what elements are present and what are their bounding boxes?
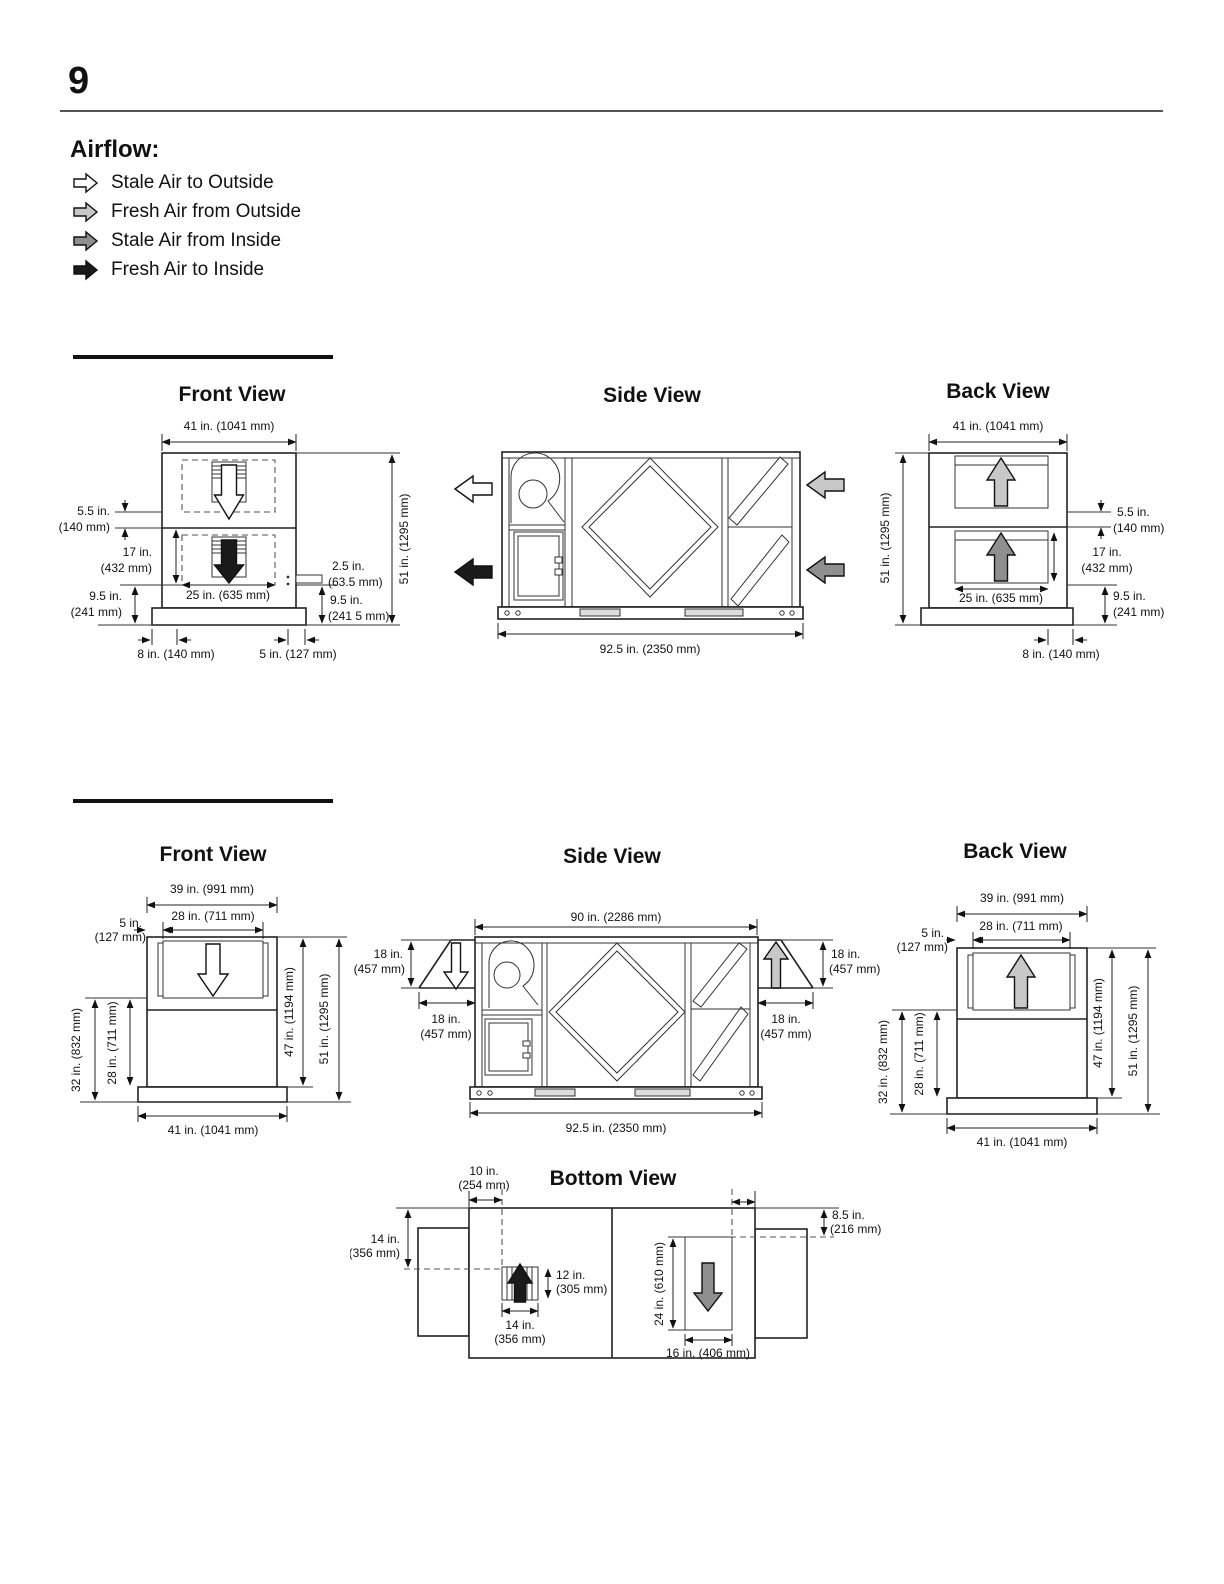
base-rail	[498, 607, 803, 619]
legend-item-fresh-to-in: Fresh Air to Inside	[72, 259, 301, 281]
right-arrow-icon	[72, 201, 99, 223]
dimension-lines	[498, 623, 803, 639]
fresh-to-in-arrow-glyph	[74, 261, 97, 279]
dim-base-off-in: 9.5 in.	[1113, 589, 1146, 603]
dim-drain-mm: (63.5 mm)	[328, 575, 383, 589]
fresh-air-from-outside-arrow	[807, 472, 844, 498]
dim-width-base: 41 in. (1041 mm)	[977, 1135, 1068, 1149]
diagram-title: Front View	[179, 383, 287, 406]
dim-right-off-in: 9.5 in.	[330, 593, 363, 607]
dim-foot: 8 in. (140 mm)	[1022, 647, 1099, 661]
page-number: 9	[68, 60, 89, 103]
dim-base-off-mm: (241 mm)	[1113, 605, 1164, 619]
dim-width-top: 39 in. (991 mm)	[170, 882, 254, 896]
dim-gap-in: 5.5 in.	[77, 504, 110, 518]
airflow-legend: Stale Air to Outside Fresh Air from Outs…	[72, 172, 301, 281]
fresh-air-in-arrow	[455, 559, 492, 585]
dim-height-ground: 32 in. (832 mm)	[876, 1020, 890, 1104]
dim-offset-in: 5 in.	[119, 916, 142, 930]
right-arrow-icon	[72, 172, 99, 194]
dim-gap-mm: (140 mm)	[59, 520, 110, 534]
dim-height: 51 in. (1295 mm)	[397, 494, 411, 585]
dim-width-top: 39 in. (991 mm)	[980, 891, 1064, 905]
dim-width-top: 41 in. (1041 mm)	[184, 419, 275, 433]
legend-label: Stale Air from Inside	[111, 230, 281, 252]
dim-height-ground: 32 in. (832 mm)	[69, 1008, 83, 1092]
fresh-air-from-outside-arrow	[764, 942, 788, 988]
dim-side-in: 14 in.	[371, 1232, 400, 1246]
unit1-front-view-diagram: Front View	[40, 368, 440, 670]
legend-label: Stale Air to Outside	[111, 172, 274, 194]
dim-base-off-mm: (241 mm)	[71, 605, 122, 619]
unit2-back-view-diagram: Back View 39 in. (991 mm) 2	[860, 825, 1224, 1155]
section-divider-2	[73, 799, 333, 803]
right-arrow-icon	[72, 230, 99, 252]
stale-out-arrow-glyph	[74, 174, 97, 192]
left-hood-footprint	[418, 1228, 469, 1336]
bottom-view-diagram: Bottom View	[350, 1145, 890, 1390]
legend-label: Fresh Air from Outside	[111, 201, 301, 223]
dim-foot-left: 8 in. (140 mm)	[137, 647, 214, 661]
dim-drain-in: 2.5 in.	[332, 559, 365, 573]
dim-height-cabinet: 47 in. (1194 mm)	[282, 967, 296, 1057]
dim-height-base: 28 in. (711 mm)	[105, 1001, 119, 1084]
diagram-title: Bottom View	[550, 1167, 677, 1190]
dim-length: 92.5 in. (2350 mm)	[600, 642, 701, 656]
dim-grille-h-mm: (305 mm)	[556, 1282, 607, 1296]
unit2-side-view-diagram: Side View	[345, 825, 890, 1150]
cabinet-outline	[404, 1189, 834, 1358]
dim-opening-h: 24 in. (610 mm)	[652, 1242, 666, 1326]
dim-height-cabinet: 47 in. (1194 mm)	[1091, 978, 1105, 1068]
dim-edge-in: 8.5 in.	[832, 1208, 865, 1222]
dim-gap-mm: (140 mm)	[1113, 521, 1164, 535]
diagram-title: Back View	[963, 840, 1067, 863]
dim-hood-left-w-mm: (457 mm)	[420, 1027, 471, 1041]
stale-from-in-arrow-glyph	[74, 232, 97, 250]
diagram-title: Back View	[946, 380, 1050, 403]
stale-air-out-arrow	[455, 476, 492, 502]
dim-offset-in: 10 in.	[469, 1164, 498, 1178]
dim-opening-h-mm: (432 mm)	[101, 561, 152, 575]
dim-hood-left-w-in: 18 in.	[431, 1012, 460, 1026]
dim-length-top: 90 in. (2286 mm)	[571, 910, 662, 924]
diagram-title: Side View	[603, 384, 701, 407]
dim-height-base: 28 in. (711 mm)	[912, 1012, 926, 1095]
access-door	[485, 1019, 532, 1075]
section-divider-1	[73, 355, 333, 359]
dim-edge-mm: (216 mm)	[830, 1222, 881, 1236]
dim-side-mm: (356 mm)	[350, 1246, 400, 1260]
dim-opening-h-mm: (432 mm)	[1081, 561, 1132, 575]
dim-hood-left-h-mm: (457 mm)	[354, 962, 405, 976]
diagram-title: Side View	[563, 845, 661, 868]
unit1-side-view-diagram: Side View	[430, 372, 850, 662]
right-arrow-icon	[72, 259, 99, 281]
dim-offset-in: 5 in.	[921, 926, 944, 940]
dim-height-total: 51 in. (1295 mm)	[1126, 986, 1140, 1077]
left-hood	[419, 940, 475, 988]
legend-item-stale-from-in: Stale Air from Inside	[72, 230, 301, 252]
dim-base-off-in: 9.5 in.	[89, 589, 122, 603]
legend-item-stale-out: Stale Air to Outside	[72, 172, 301, 194]
dim-hood-right-h-in: 18 in.	[831, 947, 860, 961]
cabinet-outline	[498, 452, 803, 619]
dim-hood-right-w-mm: (457 mm)	[760, 1027, 811, 1041]
legend-label: Fresh Air to Inside	[111, 259, 264, 281]
dim-hood-left-h-in: 18 in.	[374, 947, 403, 961]
dim-width-base: 41 in. (1041 mm)	[168, 1123, 259, 1137]
dim-gap-in: 5.5 in.	[1117, 505, 1150, 519]
dim-opening-w: 28 in. (711 mm)	[171, 909, 254, 923]
dim-width-top: 41 in. (1041 mm)	[953, 419, 1044, 433]
airflow-heading: Airflow:	[70, 136, 159, 164]
base-rail	[470, 1087, 762, 1099]
unit1-back-view-diagram: Back View 41 in. (1041 mm)	[855, 368, 1224, 670]
access-door	[514, 532, 563, 600]
right-hood	[758, 940, 813, 988]
stale-air-out-arrow	[444, 943, 468, 989]
dim-offset-mm: (127 mm)	[897, 940, 948, 954]
dim-opening-h-in: 17 in.	[1092, 545, 1121, 559]
dim-right-off-mm: (241 5 mm)	[328, 609, 389, 623]
dim-grille-h-in: 12 in.	[556, 1268, 585, 1282]
fresh-from-out-arrow-glyph	[74, 203, 97, 221]
dim-foot-right: 5 in. (127 mm)	[259, 647, 336, 661]
dim-height-total: 51 in. (1295 mm)	[317, 974, 331, 1065]
document-page: 9 Airflow: Stale Air to Outside Fresh Ai…	[0, 0, 1224, 1584]
dim-hood-right-w-in: 18 in.	[771, 1012, 800, 1026]
dim-grille-w-in: 14 in.	[505, 1318, 534, 1332]
dim-length-base: 92.5 in. (2350 mm)	[566, 1121, 667, 1135]
legend-item-fresh-from-out: Fresh Air from Outside	[72, 201, 301, 223]
dim-opening-w: 16 in. (406 mm)	[666, 1346, 750, 1360]
drain-stub	[296, 575, 322, 583]
dim-opening-h-in: 17 in.	[123, 545, 152, 559]
diagram-title: Front View	[160, 843, 268, 866]
dim-grille-w-mm: (356 mm)	[494, 1332, 545, 1346]
dim-height: 51 in. (1295 mm)	[878, 493, 892, 584]
dim-opening-w: 25 in. (635 mm)	[186, 588, 270, 602]
header-rule	[60, 110, 1163, 112]
dim-offset-mm: (254 mm)	[458, 1178, 509, 1192]
cabinet-outline	[419, 937, 813, 1099]
right-hood-footprint	[755, 1229, 807, 1338]
stale-air-from-inside-arrow	[807, 557, 844, 583]
dim-offset-mm: (127 mm)	[95, 930, 146, 944]
dim-opening-w: 25 in. (635 mm)	[959, 591, 1043, 605]
dim-opening-w: 28 in. (711 mm)	[979, 919, 1062, 933]
